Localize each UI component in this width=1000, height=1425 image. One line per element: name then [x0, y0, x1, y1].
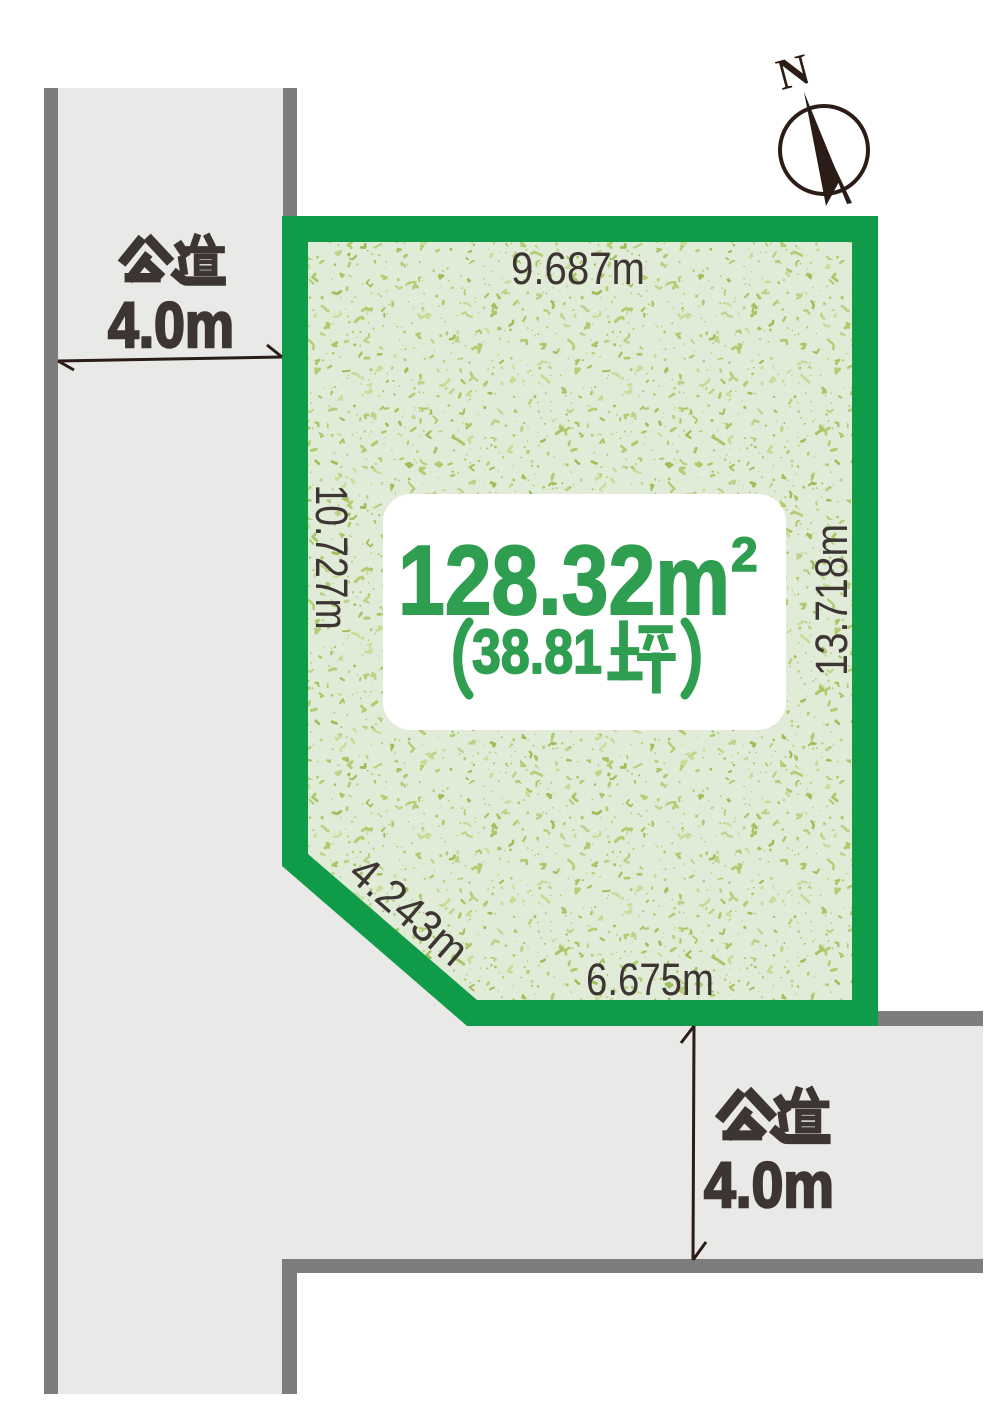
- svg-text:2: 2: [731, 529, 758, 582]
- svg-text:10.727m: 10.727m: [306, 485, 357, 630]
- svg-text:4.0m: 4.0m: [704, 1149, 834, 1221]
- svg-text:38.81: 38.81: [472, 618, 602, 687]
- svg-text:4.0m: 4.0m: [108, 289, 234, 361]
- svg-text:13.718m: 13.718m: [806, 524, 857, 676]
- svg-text:6.675m: 6.675m: [586, 954, 714, 1005]
- svg-text:9.687m: 9.687m: [511, 243, 645, 294]
